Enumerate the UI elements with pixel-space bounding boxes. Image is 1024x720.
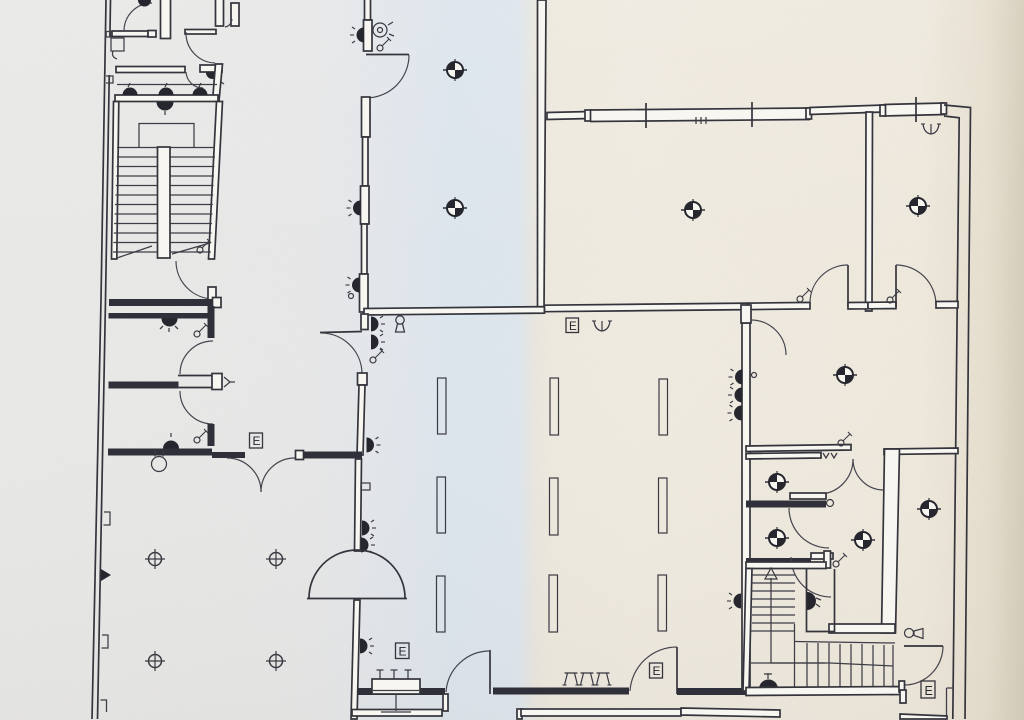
svg-text:E: E (653, 664, 661, 678)
svg-text:E: E (399, 645, 407, 659)
svg-text:E: E (569, 321, 577, 333)
svg-text:E: E (253, 434, 261, 448)
svg-text:E: E (925, 684, 933, 698)
